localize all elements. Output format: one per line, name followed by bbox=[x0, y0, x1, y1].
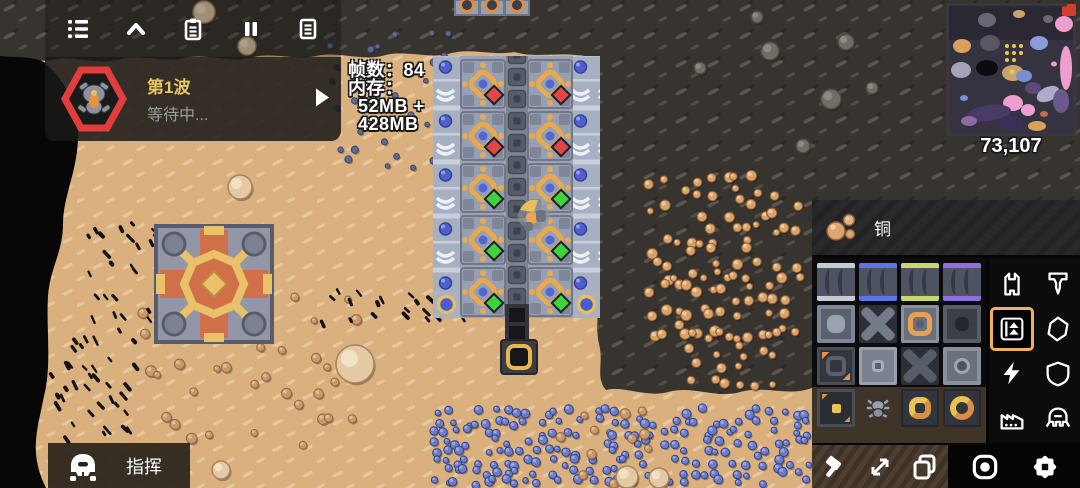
category-distribution[interactable] bbox=[993, 310, 1031, 348]
block-slot-4[interactable] bbox=[943, 263, 981, 301]
category-defense[interactable] bbox=[1039, 355, 1077, 393]
block-slot-14[interactable] bbox=[859, 389, 897, 427]
database-icon bbox=[294, 15, 322, 43]
block-slot-9[interactable] bbox=[817, 347, 855, 385]
skip-wave-button[interactable] bbox=[311, 84, 334, 115]
crafting-icon bbox=[996, 403, 1028, 435]
pause-icon bbox=[237, 15, 265, 43]
crawler-enemy-icon bbox=[57, 64, 131, 134]
command-button[interactable]: 指挥 bbox=[48, 443, 190, 488]
tool-row bbox=[812, 443, 1080, 488]
drill-icon bbox=[1042, 268, 1074, 300]
power-icon bbox=[996, 358, 1028, 390]
minimap-image bbox=[949, 6, 1073, 133]
block-slot-6[interactable] bbox=[859, 305, 897, 343]
block-slot-15[interactable] bbox=[901, 389, 939, 427]
block-slot-16[interactable] bbox=[943, 389, 981, 427]
liquid-icon bbox=[1042, 313, 1074, 345]
play-icon bbox=[315, 88, 330, 108]
hammer-icon bbox=[820, 452, 850, 482]
fps-line: 帧数：84 bbox=[348, 61, 425, 79]
launch-button[interactable] bbox=[119, 12, 153, 46]
spider-unit-icon bbox=[863, 393, 893, 423]
mech-unit-icon bbox=[62, 449, 104, 483]
chevron-up-icon bbox=[122, 15, 150, 43]
game-screen: 第1波 等待中... 帧数：84 内存： 52MB + 428MB bbox=[0, 0, 1080, 488]
block-slot-8[interactable] bbox=[943, 305, 981, 343]
turret-icon bbox=[996, 268, 1028, 300]
memory-label: 内存： bbox=[348, 79, 425, 97]
schematics-icon bbox=[179, 15, 207, 43]
settings-tool-button[interactable] bbox=[1029, 451, 1061, 483]
wall-block-row bbox=[455, 0, 529, 15]
build-panel: 铜 bbox=[812, 200, 1080, 488]
category-power[interactable] bbox=[993, 355, 1031, 393]
category-units[interactable] bbox=[1039, 400, 1077, 438]
block-slot-10[interactable] bbox=[859, 347, 897, 385]
block-slot-11[interactable] bbox=[901, 347, 939, 385]
item-bar: 铜 bbox=[812, 200, 1080, 258]
block-slot-3[interactable] bbox=[901, 263, 939, 301]
copy-icon bbox=[910, 452, 940, 482]
wave-label: 第1波 bbox=[147, 73, 208, 98]
resize-arrows-icon bbox=[865, 452, 895, 482]
copy-tool-button[interactable] bbox=[910, 452, 940, 482]
distribution-icon bbox=[996, 313, 1028, 345]
block-slot-1[interactable] bbox=[817, 263, 855, 301]
block-slot-13[interactable] bbox=[817, 389, 855, 427]
copper-ore-icon bbox=[824, 211, 862, 245]
wave-panel: 第1波 等待中... bbox=[45, 57, 341, 141]
block-slot-7[interactable] bbox=[901, 305, 939, 343]
category-drill[interactable] bbox=[1039, 265, 1077, 303]
item-name: 铜 bbox=[874, 215, 891, 240]
command-label: 指挥 bbox=[126, 453, 162, 479]
category-turret[interactable] bbox=[993, 265, 1031, 303]
category-liquid[interactable] bbox=[1039, 310, 1077, 348]
wave-status: 等待中... bbox=[147, 101, 208, 125]
menu-icon bbox=[64, 15, 92, 43]
block-slot-2[interactable] bbox=[859, 263, 897, 301]
target-icon bbox=[969, 451, 1001, 483]
memory-line2: 428MB bbox=[348, 115, 425, 133]
pause-button[interactable] bbox=[234, 12, 268, 46]
build-tools bbox=[812, 445, 948, 488]
menu-button[interactable] bbox=[61, 12, 95, 46]
toolbar bbox=[45, 0, 341, 57]
category-crafting[interactable] bbox=[993, 400, 1031, 438]
category-column bbox=[986, 258, 1080, 443]
mode-tools bbox=[948, 445, 1080, 488]
break-tool-button[interactable] bbox=[820, 452, 850, 482]
memory-line1: 52MB + bbox=[348, 97, 425, 115]
gear-icon bbox=[1029, 451, 1061, 483]
block-grid bbox=[812, 258, 986, 443]
player-coordinates: 73,107 bbox=[946, 135, 1076, 158]
block-slot-12[interactable] bbox=[943, 347, 981, 385]
block-slot-5[interactable] bbox=[817, 305, 855, 343]
minimap[interactable] bbox=[946, 3, 1076, 136]
database-button[interactable] bbox=[291, 12, 325, 46]
core-structure bbox=[156, 226, 272, 342]
units-icon bbox=[1042, 403, 1074, 435]
defense-icon bbox=[1042, 358, 1074, 390]
schematics-button[interactable] bbox=[176, 12, 210, 46]
performance-readout: 帧数：84 内存： 52MB + 428MB bbox=[348, 61, 425, 133]
resize-tool-button[interactable] bbox=[865, 452, 895, 482]
target-tool-button[interactable] bbox=[969, 451, 1001, 483]
